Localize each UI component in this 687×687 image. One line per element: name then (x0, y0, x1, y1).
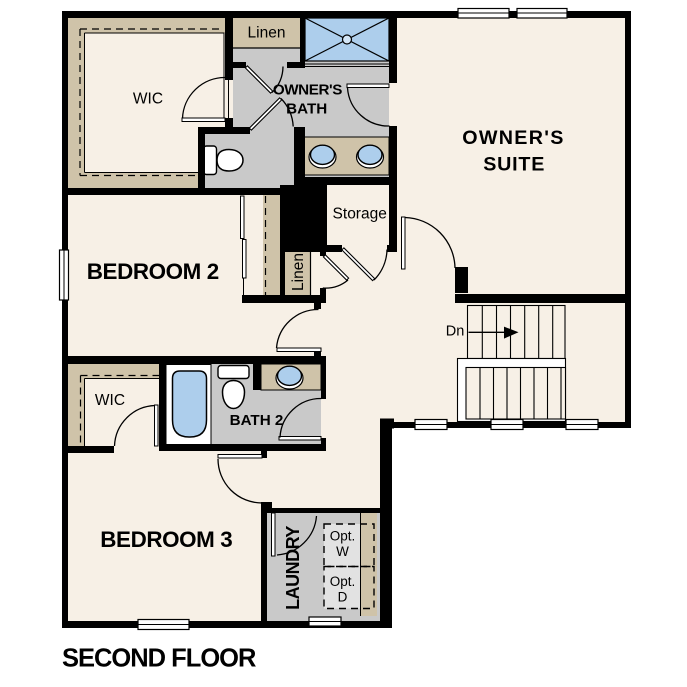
svg-text:Storage: Storage (333, 206, 387, 223)
svg-text:Linen: Linen (248, 25, 286, 42)
svg-text:BATH 2: BATH 2 (230, 412, 284, 429)
svg-text:W: W (336, 544, 349, 559)
svg-text:SECOND FLOOR: SECOND FLOOR (62, 645, 256, 673)
svg-text:OWNER'S: OWNER'S (273, 82, 342, 99)
svg-text:LAUNDRY: LAUNDRY (283, 526, 303, 610)
svg-text:D: D (338, 590, 348, 605)
svg-text:WIC: WIC (95, 392, 125, 409)
svg-text:SUITE: SUITE (483, 153, 545, 175)
svg-text:BEDROOM 3: BEDROOM 3 (100, 527, 232, 552)
svg-text:Linen: Linen (290, 253, 307, 291)
svg-text:OWNER'S: OWNER'S (462, 127, 564, 149)
svg-text:WIC: WIC (133, 91, 163, 108)
svg-text:BEDROOM 2: BEDROOM 2 (87, 259, 219, 284)
svg-text:Opt.: Opt. (330, 529, 356, 544)
svg-text:Opt.: Opt. (330, 574, 356, 589)
svg-text:Dn: Dn (446, 324, 465, 340)
svg-text:BATH: BATH (286, 100, 327, 117)
